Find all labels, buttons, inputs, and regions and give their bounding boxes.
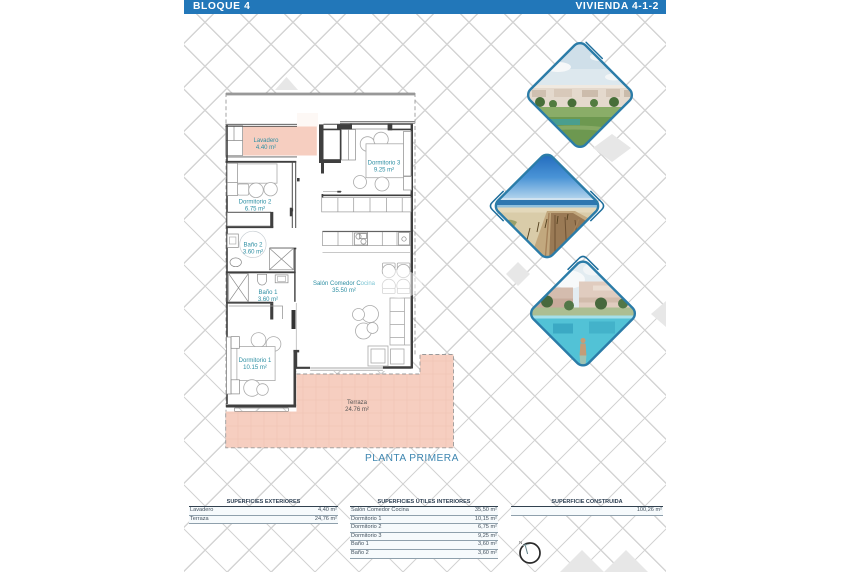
svg-text:24.76 m²: 24.76 m² bbox=[345, 407, 369, 413]
svg-text:Terraza: Terraza bbox=[347, 400, 368, 406]
svg-text:4.40 m²: 4.40 m² bbox=[256, 145, 276, 151]
svg-text:Dormitorio 1: Dormitorio 1 bbox=[239, 358, 272, 364]
svg-text:Baño 1: Baño 1 bbox=[258, 290, 278, 296]
svg-text:Dormitorio 3: Dormitorio 3 bbox=[368, 161, 401, 167]
svg-text:Baño 2: Baño 2 bbox=[243, 243, 263, 249]
svg-text:9.25 m²: 9.25 m² bbox=[374, 168, 394, 174]
svg-text:Lavadero: Lavadero bbox=[253, 138, 279, 144]
svg-text:10.15 m²: 10.15 m² bbox=[243, 365, 267, 371]
svg-text:3.60 m²: 3.60 m² bbox=[243, 250, 263, 256]
svg-text:6.75 m²: 6.75 m² bbox=[245, 207, 265, 213]
svg-text:3.60 m²: 3.60 m² bbox=[258, 297, 278, 303]
svg-text:35.50 m²: 35.50 m² bbox=[332, 288, 356, 294]
svg-text:Dormitorio 2: Dormitorio 2 bbox=[239, 200, 272, 206]
svg-text:Salón Comedor Cocina: Salón Comedor Cocina bbox=[313, 281, 376, 287]
svg-text:N: N bbox=[519, 540, 522, 545]
